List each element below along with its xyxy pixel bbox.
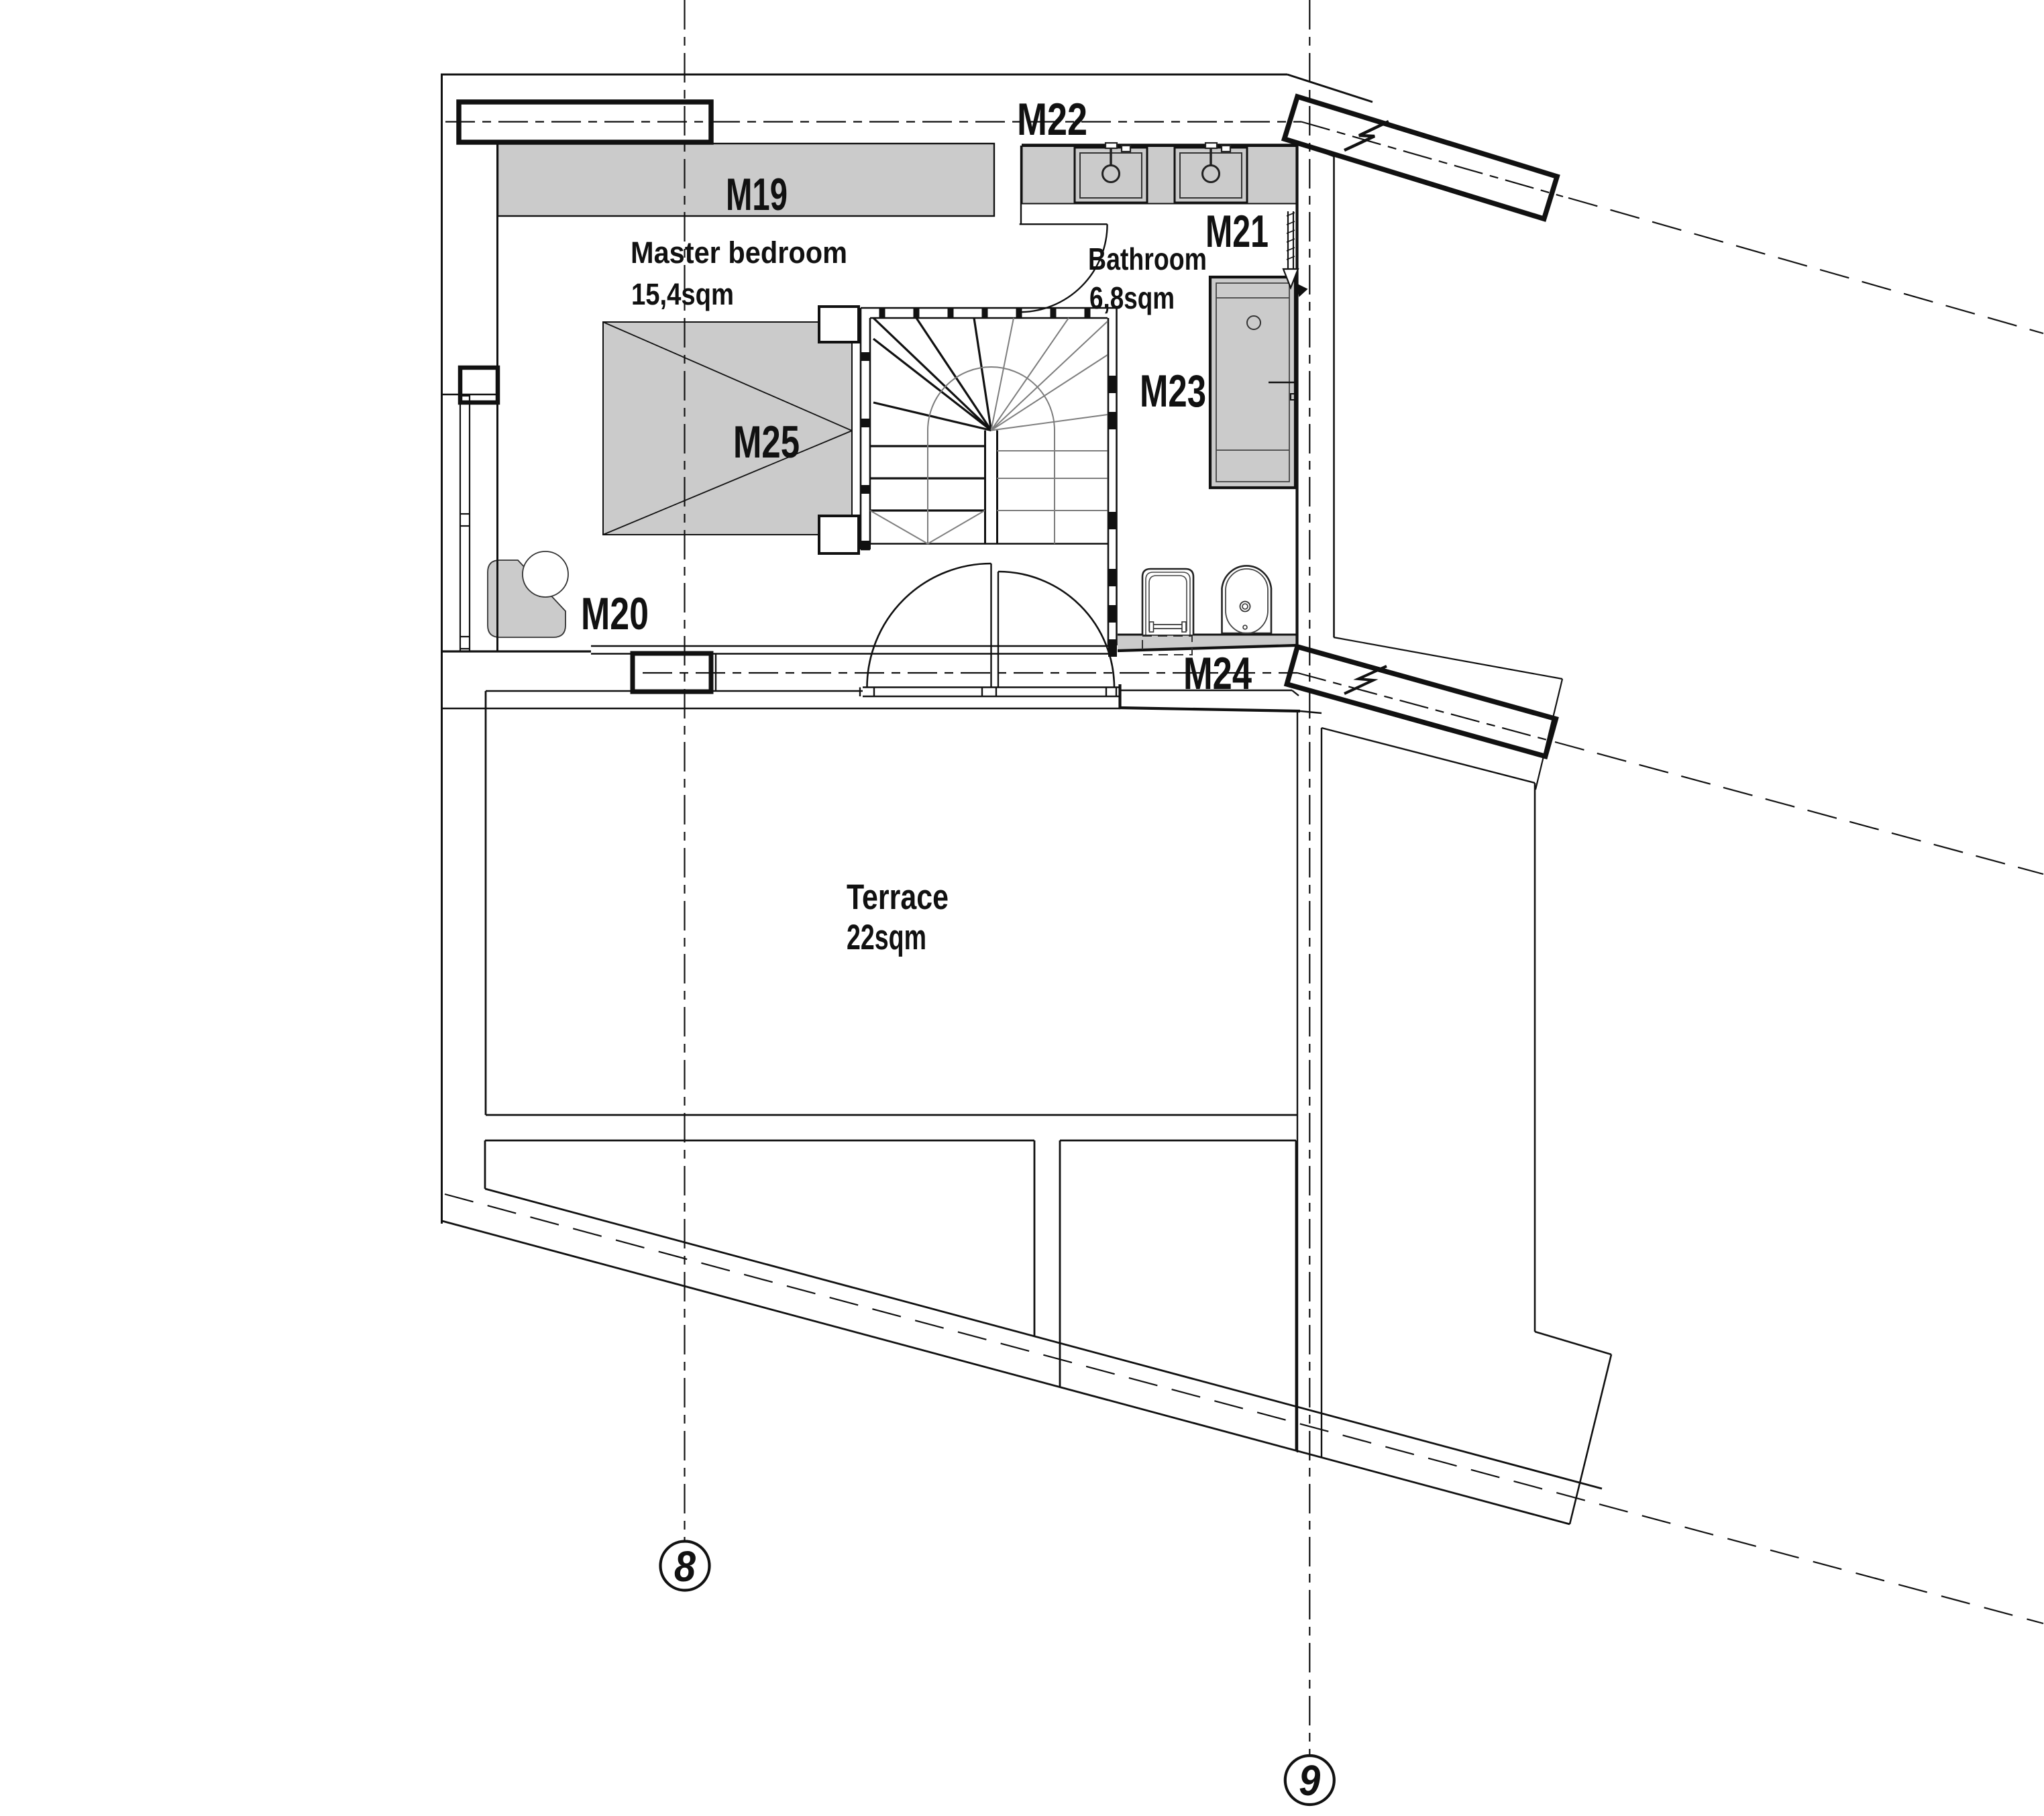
svg-text:M20: M20 xyxy=(581,588,649,639)
svg-text:6,8sqm: 6,8sqm xyxy=(1089,280,1175,315)
svg-text:22sqm: 22sqm xyxy=(847,918,926,957)
svg-text:Master bedroom: Master bedroom xyxy=(631,235,847,270)
svg-text:Terrace: Terrace xyxy=(847,877,949,917)
svg-text:M22: M22 xyxy=(1017,94,1087,145)
svg-text:9: 9 xyxy=(1299,1756,1320,1805)
svg-text:M24: M24 xyxy=(1183,648,1252,699)
svg-text:M19: M19 xyxy=(726,169,788,220)
svg-text:8: 8 xyxy=(674,1542,696,1591)
svg-text:M23: M23 xyxy=(1140,366,1206,417)
svg-text:Bathroom: Bathroom xyxy=(1088,242,1207,276)
svg-text:M25: M25 xyxy=(733,417,800,468)
svg-text:M21: M21 xyxy=(1205,206,1269,257)
svg-text:15,4sqm: 15,4sqm xyxy=(631,277,734,311)
